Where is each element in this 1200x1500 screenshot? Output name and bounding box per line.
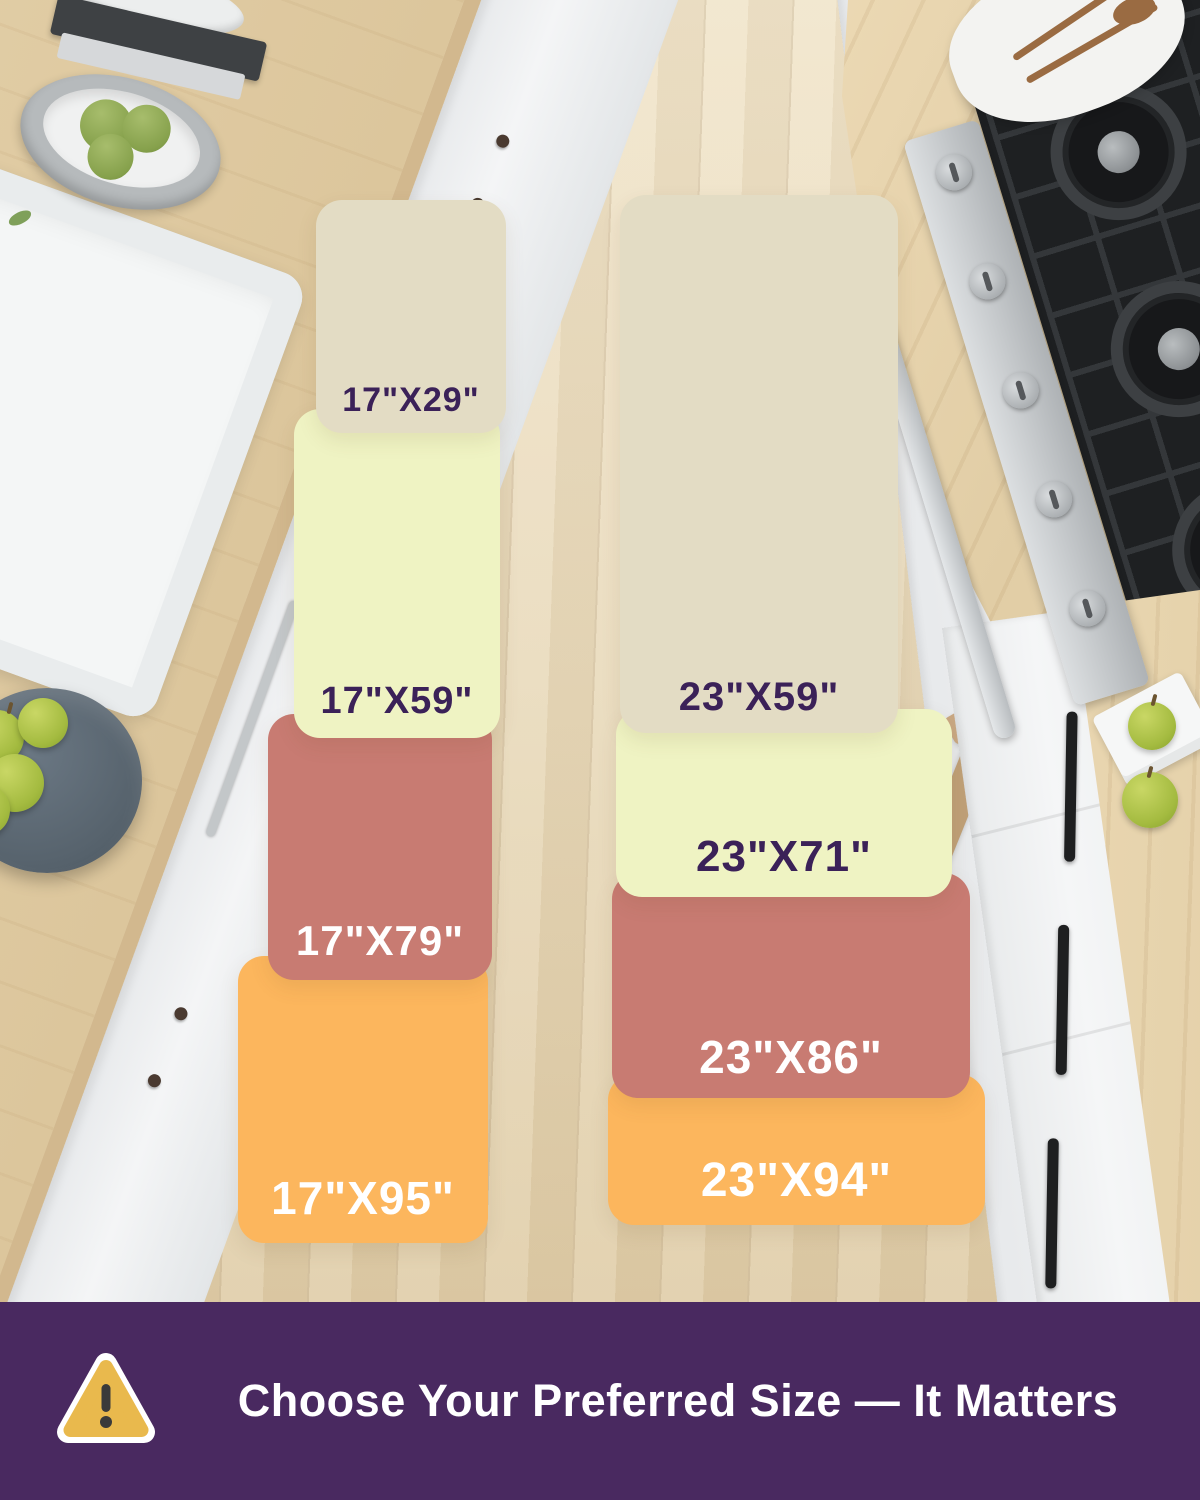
cabinet-knob <box>494 133 511 150</box>
bottom-banner: Choose Your Preferred Size — It Matters <box>0 1302 1200 1500</box>
mat-size-card-23x86: 23"X86" <box>612 873 970 1098</box>
stove-knob <box>932 150 977 195</box>
green-apple <box>18 698 68 748</box>
mat-size-card-23x59: 23"X59" <box>620 195 898 733</box>
burner-cap <box>1153 323 1200 375</box>
mat-size-label: 17"X29" <box>342 383 480 433</box>
mat-size-label: 23"X71" <box>696 835 872 897</box>
stove-knob <box>1065 586 1110 631</box>
drawer-handle <box>1064 712 1078 862</box>
cabinet-knob <box>146 1072 163 1089</box>
stove-knob <box>965 259 1010 304</box>
stove-knob <box>998 368 1043 413</box>
warning-triangle-icon <box>56 1351 156 1451</box>
mat-size-card-17x95: 17"X95" <box>238 956 488 1243</box>
banner-text: Choose Your Preferred Size — It Matters <box>190 1375 1200 1427</box>
mat-size-label: 23"X86" <box>699 1034 883 1098</box>
mat-size-card-17x59: 17"X59" <box>294 409 500 738</box>
burner-cap <box>1092 126 1144 178</box>
mat-size-label: 17"X59" <box>321 682 474 738</box>
green-apple <box>1128 702 1176 750</box>
mat-size-label: 23"X94" <box>701 1157 892 1225</box>
mat-size-label: 17"X95" <box>271 1175 455 1243</box>
stove-knob <box>1032 477 1077 522</box>
product-infographic: 17"X29" 17"X59" 17"X79" 17"X95" 23"X59" … <box>0 0 1200 1500</box>
drawer-handle <box>1045 1138 1059 1288</box>
green-apple <box>1122 772 1178 828</box>
mat-size-label: 23"X59" <box>679 677 840 733</box>
mat-size-card-17x29: 17"X29" <box>316 200 506 433</box>
mat-size-label: 17"X79" <box>296 920 464 980</box>
drawer-handle <box>1056 925 1070 1075</box>
bowl-of-apples <box>0 688 142 873</box>
mat-size-card-23x71: 23"X71" <box>616 709 952 897</box>
cabinet-knob <box>173 1005 190 1022</box>
mat-size-card-17x79: 17"X79" <box>268 714 492 980</box>
